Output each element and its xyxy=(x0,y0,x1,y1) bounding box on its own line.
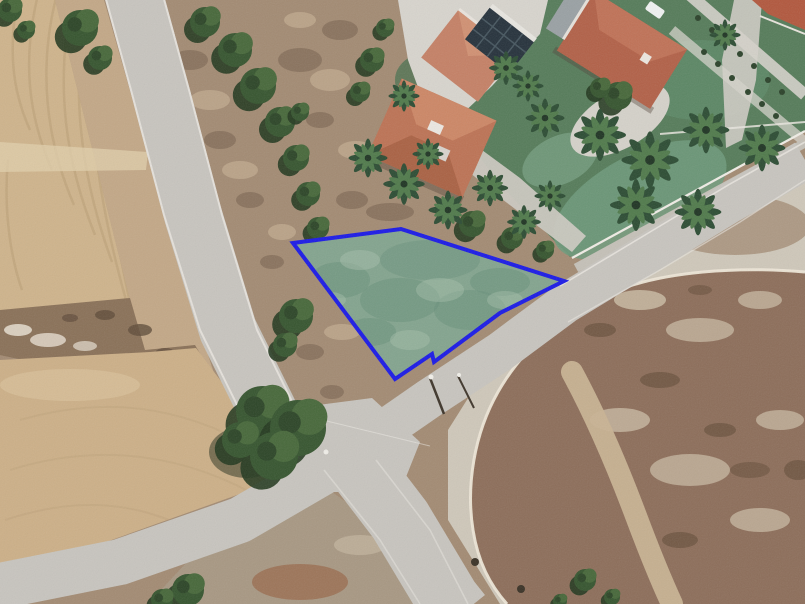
palm-tree xyxy=(675,189,722,236)
palm-tree xyxy=(709,19,740,50)
palm-tree xyxy=(526,99,565,138)
red-dirt-patch xyxy=(252,564,348,600)
small-bush xyxy=(471,558,479,566)
palm-tree xyxy=(534,180,565,211)
palm-tree xyxy=(507,205,541,239)
palm-tree xyxy=(349,139,388,178)
palm-tree xyxy=(429,191,468,230)
palm-tree xyxy=(489,51,523,85)
palm-tree xyxy=(610,179,662,231)
palm-tree xyxy=(472,170,508,206)
palm-tree xyxy=(574,109,626,161)
palm-tree xyxy=(621,131,678,188)
palm-tree xyxy=(388,80,419,111)
satellite-image xyxy=(0,0,805,604)
road-manhole xyxy=(324,450,329,455)
palm-tree xyxy=(512,70,543,101)
small-bush xyxy=(517,585,525,593)
field2-highlight xyxy=(0,369,140,401)
palm-tree xyxy=(383,163,425,205)
palm-tree xyxy=(412,138,443,169)
palm-tree xyxy=(683,107,730,154)
palm-tree xyxy=(739,125,786,172)
